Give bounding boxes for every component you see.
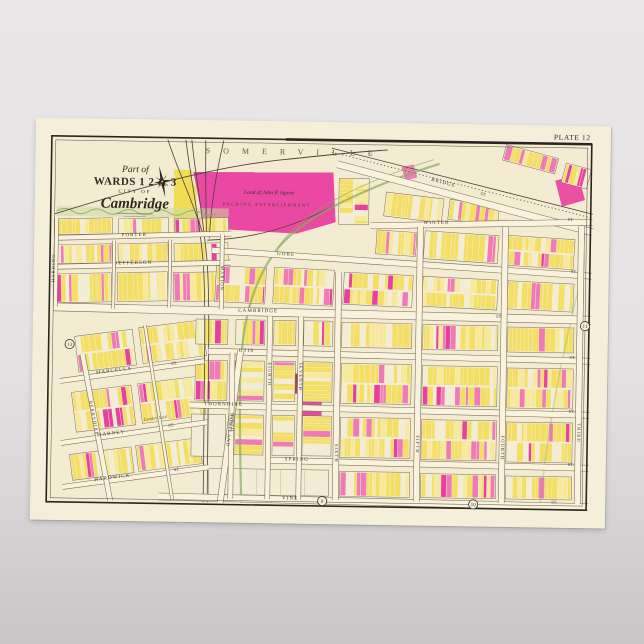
building-lot	[104, 274, 108, 301]
building-lot	[102, 219, 107, 233]
street-suffix-label: ST.	[171, 360, 177, 366]
building-lot	[130, 244, 135, 261]
building-lot	[454, 441, 458, 459]
building-lot	[324, 322, 330, 345]
building-lot	[383, 324, 386, 347]
building-lot	[422, 441, 427, 459]
street	[298, 317, 301, 500]
building-lot	[359, 385, 364, 403]
building-lot	[436, 387, 441, 405]
street-label: SEVENTH	[298, 362, 303, 391]
building-lot	[477, 295, 481, 308]
building-lot	[133, 219, 136, 233]
building-lot	[561, 444, 563, 462]
street-label: THORNDIKE	[204, 402, 243, 408]
building-lot	[355, 200, 368, 205]
building-lot	[485, 368, 490, 386]
building-lot	[381, 419, 387, 437]
building-lot	[358, 274, 363, 288]
building-lot	[186, 273, 190, 300]
building-lot	[303, 431, 330, 437]
building-lot	[119, 245, 124, 262]
plate-ref: 9	[318, 496, 327, 505]
building-lot	[483, 422, 489, 440]
building-lot	[476, 441, 479, 459]
building-lot	[353, 419, 359, 437]
building-lot	[299, 288, 304, 304]
building-lot	[408, 385, 410, 403]
building-lot	[532, 477, 535, 498]
street-label: THIRD	[576, 423, 581, 443]
building-lot	[344, 438, 347, 456]
building-lot	[211, 273, 214, 300]
building-lot	[199, 244, 202, 261]
building-lot	[508, 389, 511, 407]
building-lot	[475, 326, 481, 349]
building-lot	[525, 389, 531, 407]
building-lot	[466, 387, 468, 405]
building-lot	[367, 385, 370, 403]
building-lot	[394, 439, 398, 457]
building-lot	[378, 291, 384, 305]
building-lot	[273, 442, 293, 447]
building-lot	[216, 219, 218, 233]
building-lot	[260, 321, 264, 344]
building-lot	[91, 245, 95, 262]
building-lot	[69, 246, 72, 263]
building-lot	[76, 245, 82, 262]
building-lot	[376, 365, 379, 383]
building-lot	[551, 370, 557, 388]
plate-ref-number: 11	[583, 325, 588, 330]
building-lot	[423, 387, 428, 405]
building-lot	[487, 476, 491, 498]
building-lot	[482, 327, 485, 350]
building-lot	[556, 424, 561, 442]
building-lot	[304, 368, 331, 373]
building-lot	[550, 239, 556, 252]
building-lot	[388, 275, 394, 289]
building-lot	[340, 185, 353, 189]
building-lot	[393, 419, 399, 437]
building-lot	[466, 326, 469, 349]
building-lot	[508, 369, 512, 387]
building-lot	[138, 273, 143, 300]
building-lot	[351, 323, 354, 346]
building-lot	[405, 419, 407, 437]
building-lot	[535, 423, 540, 441]
building-lot	[274, 366, 294, 372]
street	[335, 272, 339, 500]
building-lot	[528, 328, 532, 351]
building-lot	[340, 208, 353, 213]
building-lot	[156, 219, 162, 233]
building-lot	[183, 273, 186, 300]
building-lot	[303, 417, 330, 420]
building-lot	[162, 244, 167, 261]
building-lot	[378, 419, 381, 437]
building-lot	[201, 381, 204, 399]
city-block	[505, 235, 575, 270]
title-city-of: CITY OF	[118, 190, 151, 196]
building-lot	[438, 441, 441, 459]
plate-ref: 11	[580, 321, 589, 330]
building-lot	[76, 219, 81, 233]
plate-ref-number: 10	[471, 503, 477, 508]
building-lot	[304, 385, 331, 390]
building-lot	[360, 290, 365, 304]
building-lot	[353, 385, 356, 403]
building-lot	[522, 423, 524, 441]
building-lot	[549, 254, 555, 267]
building-lot	[303, 420, 330, 423]
building-lot	[490, 476, 494, 498]
building-lot	[487, 388, 490, 406]
building-lot	[375, 439, 379, 457]
building-lot	[482, 280, 487, 293]
building-lot	[357, 385, 360, 403]
city-block	[343, 272, 414, 307]
building-lot	[460, 387, 465, 405]
city-block	[117, 272, 168, 302]
building-lot	[547, 478, 551, 499]
building-lot	[104, 245, 109, 262]
building-lot	[372, 439, 375, 457]
building-lot	[283, 269, 288, 285]
building-lot	[408, 419, 410, 437]
building-lot	[196, 381, 201, 399]
building-lot	[67, 220, 73, 234]
building-lot	[451, 441, 454, 459]
building-lot	[493, 368, 495, 386]
building-lot	[313, 322, 319, 345]
title-cambridge: Cambridge	[101, 196, 170, 213]
building-lot	[450, 326, 456, 349]
building-lot	[467, 475, 472, 497]
building-lot	[540, 423, 546, 441]
building-lot	[553, 424, 556, 442]
building-lot	[397, 324, 403, 347]
building-lot	[436, 293, 442, 306]
building-lot	[319, 271, 325, 287]
building-lot	[511, 389, 514, 407]
street-label: CAMBRIDGE	[238, 309, 278, 315]
building-lot	[223, 381, 226, 399]
building-lot	[304, 394, 331, 397]
building-lot	[135, 244, 140, 261]
building-lot	[234, 285, 240, 301]
building-lot	[379, 324, 383, 347]
building-lot	[303, 423, 330, 426]
building-lot	[407, 365, 411, 383]
building-lot	[354, 324, 360, 347]
scene: { "map": { "plate_label": "PLATE 12", "b…	[0, 0, 644, 644]
building-lot	[537, 369, 540, 387]
building-lot	[274, 384, 294, 388]
building-lot	[106, 219, 111, 233]
city-block	[422, 366, 498, 407]
building-lot	[535, 477, 538, 498]
building-lot	[446, 441, 451, 459]
street-label: MARION	[219, 266, 224, 291]
building-lot	[355, 216, 368, 220]
building-lot	[427, 326, 430, 349]
city-block	[507, 368, 574, 409]
building-lot	[365, 439, 368, 457]
building-lot	[432, 475, 434, 497]
building-lot	[469, 326, 475, 349]
building-lot	[143, 273, 148, 300]
street	[267, 316, 270, 499]
street-label: FOURTH	[500, 435, 505, 460]
building-lot	[485, 327, 491, 350]
building-lot	[568, 478, 571, 499]
building-lot	[433, 278, 437, 291]
building-lot	[129, 219, 133, 233]
landmark-line1: Land of John P. Squire	[243, 189, 295, 197]
building-lot	[480, 442, 484, 460]
building-lot	[476, 280, 481, 293]
building-lot	[546, 390, 551, 408]
building-lot	[85, 219, 89, 233]
building-lot	[545, 329, 550, 352]
building-lot	[376, 473, 380, 496]
building-lot	[370, 385, 374, 403]
building-lot	[210, 381, 216, 399]
map-svg: BRIDGEST.WINTERST.GOREST.CAMBRIDGEST.OTI…	[30, 118, 611, 529]
building-lot	[441, 387, 445, 405]
building-lot	[219, 219, 223, 233]
building-lot	[391, 292, 397, 306]
building-lot	[562, 370, 566, 388]
city-block	[55, 273, 112, 303]
building-lot	[252, 321, 255, 344]
building-lot	[62, 220, 67, 234]
building-lot	[101, 245, 104, 262]
building-lot	[142, 219, 145, 233]
building-lot	[403, 439, 409, 457]
building-lot	[545, 239, 551, 252]
building-lot	[450, 279, 455, 292]
building-lot	[398, 439, 403, 457]
building-lot	[402, 385, 408, 403]
building-lot	[278, 321, 281, 344]
building-lot	[256, 321, 260, 344]
building-lot	[73, 219, 76, 233]
building-lot	[435, 475, 441, 497]
street-suffix-label: ST.	[168, 422, 174, 428]
street-label: SIXTH	[334, 444, 339, 463]
city-block	[71, 385, 135, 432]
city-block	[423, 325, 498, 351]
building-lot	[541, 369, 544, 387]
building-lot	[421, 475, 425, 497]
building-lot	[297, 269, 302, 285]
building-lot	[379, 365, 385, 383]
building-lot	[347, 364, 353, 382]
building-lot	[423, 292, 427, 305]
building-lot	[371, 365, 376, 383]
building-lot	[422, 421, 425, 439]
building-lot	[480, 368, 485, 386]
building-lot	[352, 274, 358, 288]
building-lot	[522, 477, 527, 498]
building-lot	[458, 421, 462, 439]
building-lot	[401, 365, 407, 383]
building-lot	[72, 274, 79, 301]
city-block	[302, 416, 332, 456]
building-lot	[351, 438, 355, 456]
building-lot	[436, 326, 438, 349]
building-lot	[568, 329, 572, 352]
building-lot	[134, 273, 138, 300]
building-lot	[372, 473, 375, 496]
building-lot	[469, 295, 474, 308]
building-lot	[452, 475, 458, 497]
building-lot	[361, 473, 367, 496]
building-lot	[347, 418, 352, 436]
building-lot	[451, 421, 454, 439]
plate-ref: 13	[65, 339, 74, 348]
city-block	[420, 474, 495, 499]
building-lot	[564, 240, 570, 253]
building-lot	[98, 219, 102, 233]
building-lot	[97, 245, 101, 262]
building-lot	[156, 244, 162, 261]
building-lot	[249, 268, 255, 284]
building-lot	[355, 439, 360, 457]
building-lot	[224, 361, 226, 379]
street-suffix-label: ST.	[568, 462, 574, 467]
street-label: FIFTH	[415, 435, 420, 453]
building-lot	[523, 252, 528, 265]
building-lot	[490, 442, 495, 460]
building-lot	[249, 321, 252, 344]
building-lot	[446, 475, 451, 497]
building-lot	[354, 473, 357, 496]
building-lot	[366, 419, 371, 437]
building-lot	[284, 287, 290, 303]
building-lot	[365, 365, 371, 383]
building-lot	[560, 390, 563, 408]
building-lot	[366, 290, 372, 304]
building-lot	[304, 363, 331, 368]
building-lot	[175, 245, 180, 262]
building-lot	[512, 328, 516, 351]
building-lot	[86, 245, 91, 262]
building-lot	[536, 389, 542, 407]
city-block	[273, 361, 296, 401]
city-block	[505, 476, 571, 500]
building-lot	[61, 275, 66, 302]
street-label: NINTH	[229, 413, 234, 433]
building-lot	[392, 324, 397, 347]
building-lot	[564, 444, 567, 462]
street	[113, 241, 114, 309]
building-lot	[462, 441, 466, 459]
building-lot	[274, 375, 294, 379]
building-lot	[517, 237, 523, 250]
building-lot	[460, 326, 465, 349]
building-lot	[552, 478, 558, 499]
building-lot	[342, 364, 346, 382]
building-lot	[405, 473, 408, 496]
building-lot	[455, 279, 460, 292]
building-lot	[353, 365, 359, 383]
building-lot	[146, 219, 151, 233]
building-lot	[160, 273, 166, 300]
building-lot	[122, 274, 127, 301]
building-lot	[471, 441, 476, 459]
building-lot	[474, 387, 480, 405]
building-lot	[426, 293, 430, 306]
building-lot	[524, 423, 527, 441]
building-lot	[363, 419, 366, 437]
building-lot	[442, 293, 446, 306]
building-lot	[275, 321, 279, 344]
building-lot	[439, 326, 443, 349]
building-lot	[518, 477, 522, 498]
building-lot	[532, 423, 535, 441]
building-lot	[386, 473, 390, 496]
building-lot	[520, 389, 525, 407]
building-lot	[550, 329, 555, 352]
building-lot	[89, 219, 94, 233]
building-lot	[193, 244, 198, 261]
city-block-outline	[272, 415, 295, 455]
city-block	[423, 231, 499, 264]
building-lot	[380, 473, 386, 496]
city-block	[234, 415, 264, 455]
city-block	[118, 243, 168, 263]
building-lot	[466, 441, 470, 459]
building-lot	[217, 381, 223, 399]
building-lot	[340, 179, 353, 185]
building-lot	[433, 367, 437, 385]
building-lot	[513, 389, 519, 407]
city-block	[342, 322, 412, 348]
building-lot	[481, 295, 486, 308]
building-lot	[353, 290, 357, 304]
building-lot	[139, 244, 142, 261]
building-lot	[458, 294, 464, 307]
building-lot	[517, 443, 523, 461]
street-label: JEFFERSON	[115, 261, 152, 267]
building-lot	[489, 422, 492, 440]
building-lot	[209, 361, 214, 379]
building-lot	[372, 291, 378, 305]
city-block	[196, 319, 228, 344]
street-suffix-label: ST.	[568, 217, 574, 222]
building-lot	[390, 439, 393, 457]
building-lot	[428, 387, 433, 405]
building-lot	[324, 289, 330, 305]
building-lot	[322, 322, 324, 345]
building-lot	[307, 270, 313, 286]
building-lot	[369, 439, 372, 457]
city-block	[341, 363, 412, 404]
building-lot	[392, 385, 396, 403]
building-lot	[511, 423, 517, 441]
street-label: OTIS	[239, 349, 255, 354]
building-lot	[513, 369, 518, 387]
building-lot	[304, 381, 331, 385]
building-lot	[402, 292, 408, 306]
building-lot	[383, 385, 386, 403]
building-lot	[509, 251, 515, 264]
building-lot	[274, 286, 280, 302]
building-lot	[432, 441, 437, 459]
